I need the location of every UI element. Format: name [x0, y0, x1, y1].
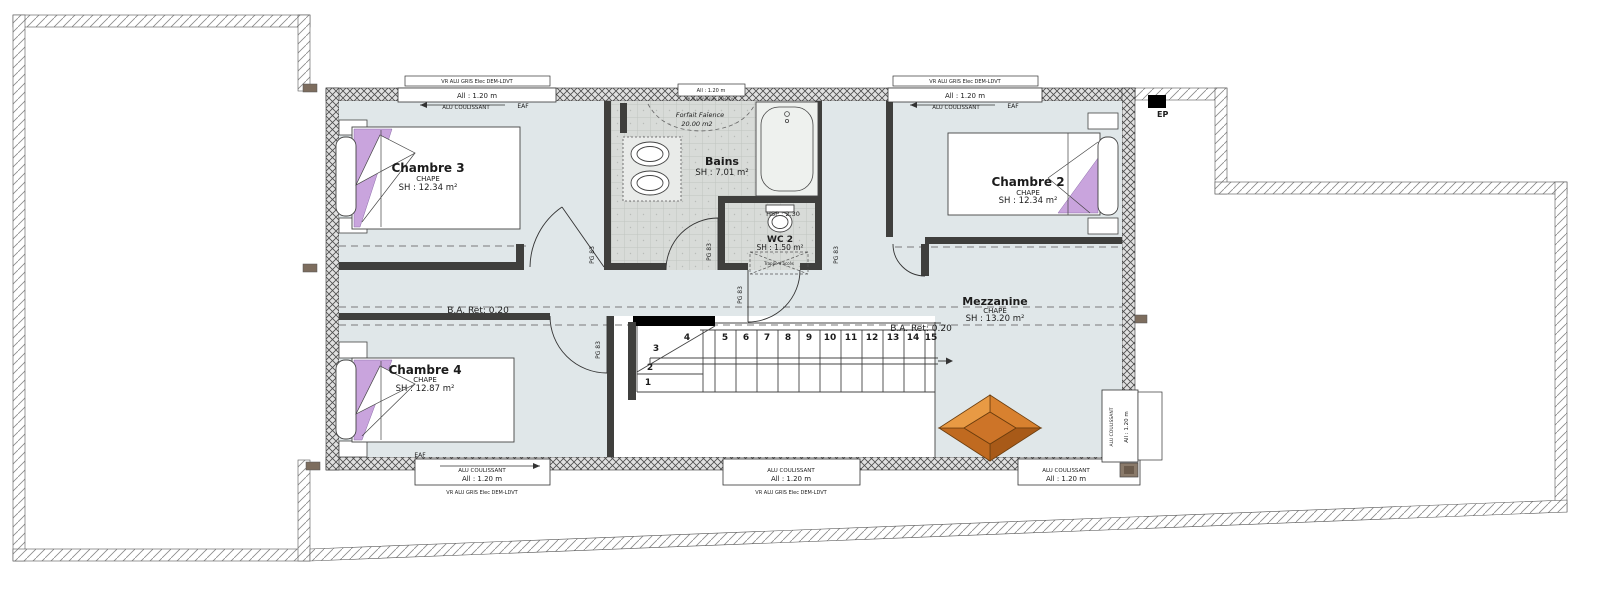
east-window: ALU COULISSANT All : 1.20 m — [1102, 390, 1162, 462]
svg-text:5: 5 — [722, 333, 728, 343]
sliding-label: ALU COULISSANT — [1109, 407, 1115, 446]
eaf-label: EAF — [1007, 103, 1019, 110]
svg-text:1: 1 — [645, 378, 651, 388]
sill-label: All : 1.20 m — [457, 92, 497, 100]
stair-landing-edge — [633, 316, 715, 326]
svg-text:4: 4 — [684, 333, 690, 343]
svg-text:HSP : 2.30: HSP : 2.30 — [766, 210, 800, 218]
svg-text:SH : 12.34 m²: SH : 12.34 m² — [399, 183, 458, 193]
sill-label: All : 1.20 m — [1046, 475, 1086, 483]
sill-label: All : 1.20 m — [462, 475, 502, 483]
sliding-label: ALU COULISSANT — [767, 468, 815, 474]
svg-text:PG 83: PG 83 — [737, 286, 744, 304]
svg-text:13: 13 — [887, 333, 900, 343]
svg-text:Chambre 4: Chambre 4 — [388, 363, 461, 377]
svg-text:2: 2 — [647, 363, 653, 373]
svg-text:SH : 1.50 m²: SH : 1.50 m² — [756, 243, 803, 252]
sliding-label: ALU COULISSANT — [1042, 468, 1090, 474]
svg-text:SH : 12.34 m²: SH : 12.34 m² — [999, 196, 1058, 206]
rainwater-pipe: EP — [1148, 95, 1168, 119]
roller-label: VR ALU GRIS Elec DEM-LDVT — [929, 79, 1001, 85]
beam-note-left: B.A. Ret: 0.20 — [447, 306, 509, 316]
sill-label: All : 1.20 m — [771, 475, 811, 483]
ep-label: EP — [1157, 110, 1168, 119]
svg-text:Chambre 2: Chambre 2 — [991, 175, 1064, 189]
eaf-label: EAF — [517, 103, 529, 110]
sliding-label: ALU COULISSANT — [442, 105, 490, 111]
svg-text:CHAPE: CHAPE — [413, 376, 437, 384]
floor-plan: VR ALU GRIS Elec DEM-LDVT All : 1.20 m A… — [0, 0, 1600, 600]
svg-text:6: 6 — [743, 333, 749, 343]
roller-label: VR ALU GRIS Elec DEM-LDVT — [441, 79, 513, 85]
svg-text:CHAPE: CHAPE — [416, 175, 440, 183]
svg-text:20.00 m2: 20.00 m2 — [681, 120, 712, 128]
svg-text:Trappe d'accès: Trappe d'accès — [763, 261, 794, 266]
stair-side-wall — [628, 322, 636, 400]
bathtub-icon — [756, 102, 818, 196]
svg-text:PG 83: PG 83 — [706, 243, 713, 261]
svg-text:Forfait Faïence: Forfait Faïence — [676, 111, 724, 119]
beam-note-right: B.A. Ret: 0.20 — [890, 324, 952, 334]
svg-text:14: 14 — [907, 333, 920, 343]
svg-text:Chambre 3: Chambre 3 — [391, 161, 464, 175]
svg-text:11: 11 — [845, 333, 858, 343]
south-windows: EAF ALU COULISSANT All : 1.20 m VR ALU G… — [414, 452, 1140, 496]
svg-text:Bains: Bains — [705, 155, 739, 168]
svg-text:9: 9 — [806, 333, 812, 343]
svg-text:15: 15 — [925, 333, 938, 343]
svg-text:PG 83: PG 83 — [589, 246, 596, 264]
svg-text:SH : 13.20 m²: SH : 13.20 m² — [966, 314, 1025, 324]
sill-label: All : 1.20 m — [945, 92, 985, 100]
roller-label: VR ALU GRIS Elec DEM-LDVT — [446, 490, 518, 496]
sliding-label: ALU COULISSANT — [458, 468, 506, 474]
roller-label: VR ALU GRIS Elec DEM-LDVT — [685, 97, 737, 101]
eaf-label: EAF — [414, 452, 426, 459]
floor-plan-drawing: VR ALU GRIS Elec DEM-LDVT All : 1.20 m A… — [0, 0, 1600, 600]
svg-text:SH : 12.87 m²: SH : 12.87 m² — [396, 384, 455, 394]
svg-text:10: 10 — [824, 333, 837, 343]
svg-text:12: 12 — [866, 333, 879, 343]
svg-text:7: 7 — [764, 333, 770, 343]
svg-text:SH : 7.01 m²: SH : 7.01 m² — [695, 168, 748, 178]
bed-chambre4 — [336, 342, 514, 457]
sill-label: All : 1.20 m — [697, 88, 726, 94]
svg-text:3: 3 — [653, 344, 659, 354]
svg-text:8: 8 — [785, 333, 791, 343]
svg-text:PG 83: PG 83 — [595, 341, 602, 359]
svg-text:PG 83: PG 83 — [833, 246, 840, 264]
roller-label: VR ALU GRIS Elec DEM-LDVT — [755, 490, 827, 496]
sill-label: All : 1.20 m — [1124, 411, 1130, 443]
sliding-label: ALU COULISSANT — [932, 105, 980, 111]
ep-marker — [1148, 95, 1166, 108]
